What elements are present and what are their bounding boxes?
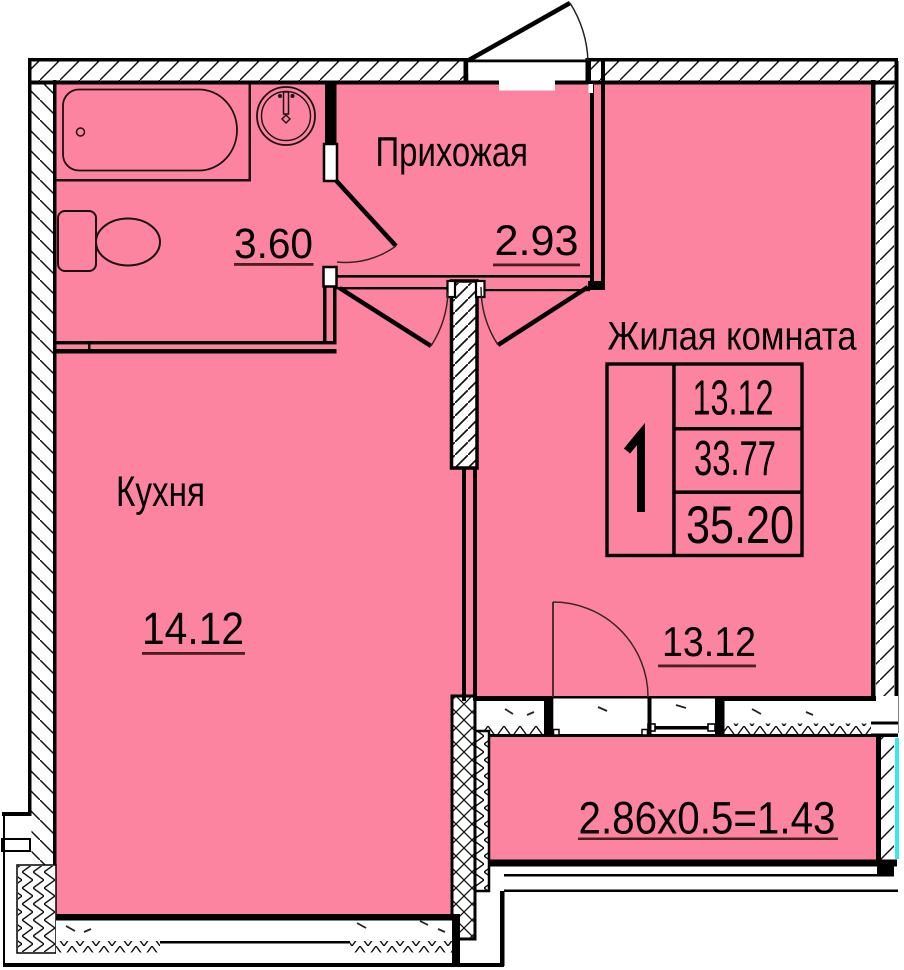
svg-text:33.77: 33.77 [694, 432, 776, 486]
svg-text:3.60: 3.60 [234, 220, 313, 268]
svg-text:13.12: 13.12 [693, 372, 774, 426]
svg-text:2.86x0.5=1.43: 2.86x0.5=1.43 [579, 793, 836, 844]
svg-text:14.12: 14.12 [142, 603, 244, 654]
svg-text:35.20: 35.20 [686, 496, 794, 555]
svg-text:Прихожая: Прихожая [376, 128, 529, 175]
svg-text:2.93: 2.93 [495, 217, 579, 265]
svg-text:Кухня: Кухня [116, 468, 205, 516]
svg-text:13.12: 13.12 [662, 618, 756, 665]
svg-text:Жилая комната: Жилая комната [608, 315, 857, 359]
